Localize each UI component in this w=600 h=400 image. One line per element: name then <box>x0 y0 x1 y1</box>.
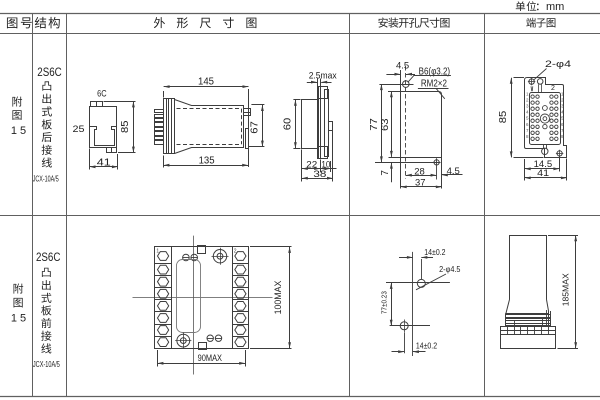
svg-text:25: 25 <box>73 124 85 135</box>
svg-text:4.5: 4.5 <box>447 166 460 177</box>
svg-text:2-φ4.5: 2-φ4.5 <box>439 264 461 274</box>
svg-text:JCX-10A/5: JCX-10A/5 <box>33 359 60 369</box>
svg-text:60: 60 <box>283 117 294 130</box>
svg-text:2.5max: 2.5max <box>309 70 337 81</box>
svg-text:145: 145 <box>198 76 214 87</box>
svg-text:2: 2 <box>234 249 237 255</box>
svg-text:85: 85 <box>498 110 509 123</box>
svg-text:100MAX: 100MAX <box>273 281 283 315</box>
svg-text:14±0.2: 14±0.2 <box>424 247 445 257</box>
svg-text:77±0.23: 77±0.23 <box>379 291 388 314</box>
svg-text:2S6C: 2S6C <box>36 252 61 264</box>
svg-text:2: 2 <box>551 85 555 92</box>
svg-text:2-φ4: 2-φ4 <box>545 59 571 70</box>
svg-text:JCX-10A/5: JCX-10A/5 <box>33 173 59 183</box>
svg-text:RM2×2: RM2×2 <box>421 79 447 90</box>
svg-text:90MAX: 90MAX <box>198 353 222 363</box>
svg-text:77: 77 <box>369 118 380 131</box>
svg-text:1: 1 <box>156 249 159 255</box>
svg-text:6C: 6C <box>97 88 107 98</box>
svg-text:67: 67 <box>250 121 261 134</box>
svg-text:2S6C: 2S6C <box>37 67 62 79</box>
svg-text:1 5: 1 5 <box>11 125 26 137</box>
svg-text:14±0.2: 14±0.2 <box>416 341 437 351</box>
svg-text:28: 28 <box>414 166 425 177</box>
svg-text:63: 63 <box>380 118 391 131</box>
svg-text:37: 37 <box>415 178 426 189</box>
svg-text:85: 85 <box>120 120 131 133</box>
svg-text:mm: mm <box>546 1 564 13</box>
svg-text:41: 41 <box>97 157 112 168</box>
svg-text:4.5: 4.5 <box>396 60 409 71</box>
svg-text:7: 7 <box>380 170 391 176</box>
svg-text:38: 38 <box>313 169 326 180</box>
svg-text:1 5: 1 5 <box>11 312 26 324</box>
svg-text:41: 41 <box>537 168 549 179</box>
svg-text:135: 135 <box>199 156 215 167</box>
svg-text:185MAX: 185MAX <box>561 273 571 306</box>
